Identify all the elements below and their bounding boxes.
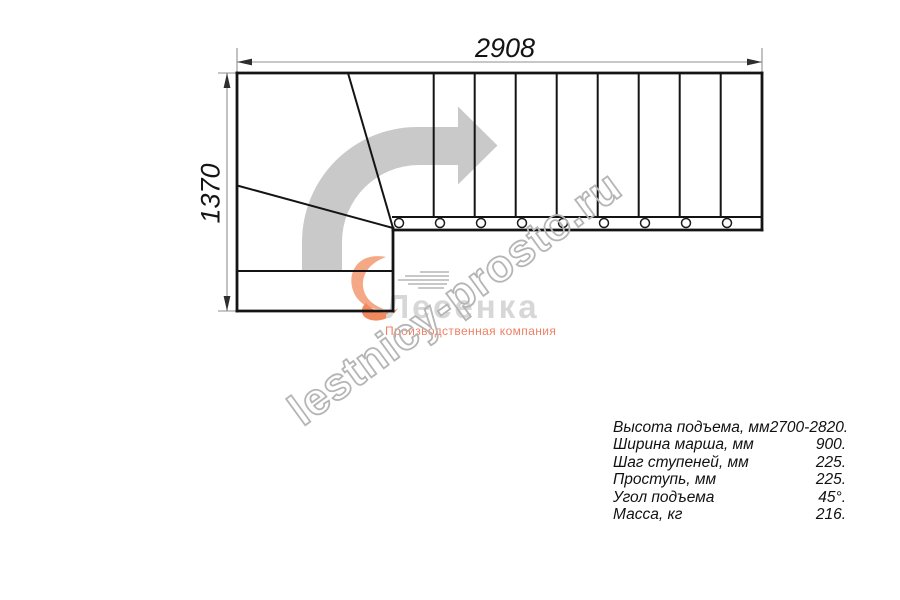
spec-value: 225.	[816, 471, 846, 488]
stair-drawing-page: Лесенка Производственная компания	[0, 0, 900, 600]
spec-label: Угол подъема	[613, 489, 714, 506]
spec-row: Шаг ступеней, мм 225.	[613, 454, 846, 471]
spec-label: Проступь, мм	[613, 471, 716, 488]
spec-value: 216.	[816, 506, 846, 523]
spec-row: Проступь, мм 225.	[613, 471, 846, 488]
spec-label: Масса, кг	[613, 506, 682, 523]
spec-label: Ширина марша, мм	[613, 436, 754, 453]
spec-row: Высота подъема, мм 2700-2820.	[613, 419, 846, 436]
spec-row: Угол подъема 45°.	[613, 489, 846, 506]
spec-label: Высота подъема, мм	[613, 419, 770, 436]
spec-row: Масса, кг 216.	[613, 506, 846, 523]
dimension-top-label: 2908	[445, 33, 565, 64]
specs-table: Высота подъема, мм 2700-2820. Ширина мар…	[613, 419, 846, 523]
spec-value: 45°.	[818, 489, 846, 506]
spec-row: Ширина марша, мм 900.	[613, 436, 846, 453]
dimension-left-label: 1370	[196, 134, 227, 254]
spec-value: 900.	[816, 436, 846, 453]
spec-value: 225.	[816, 454, 846, 471]
spec-label: Шаг ступеней, мм	[613, 454, 749, 471]
spec-value: 2700-2820.	[770, 419, 848, 436]
